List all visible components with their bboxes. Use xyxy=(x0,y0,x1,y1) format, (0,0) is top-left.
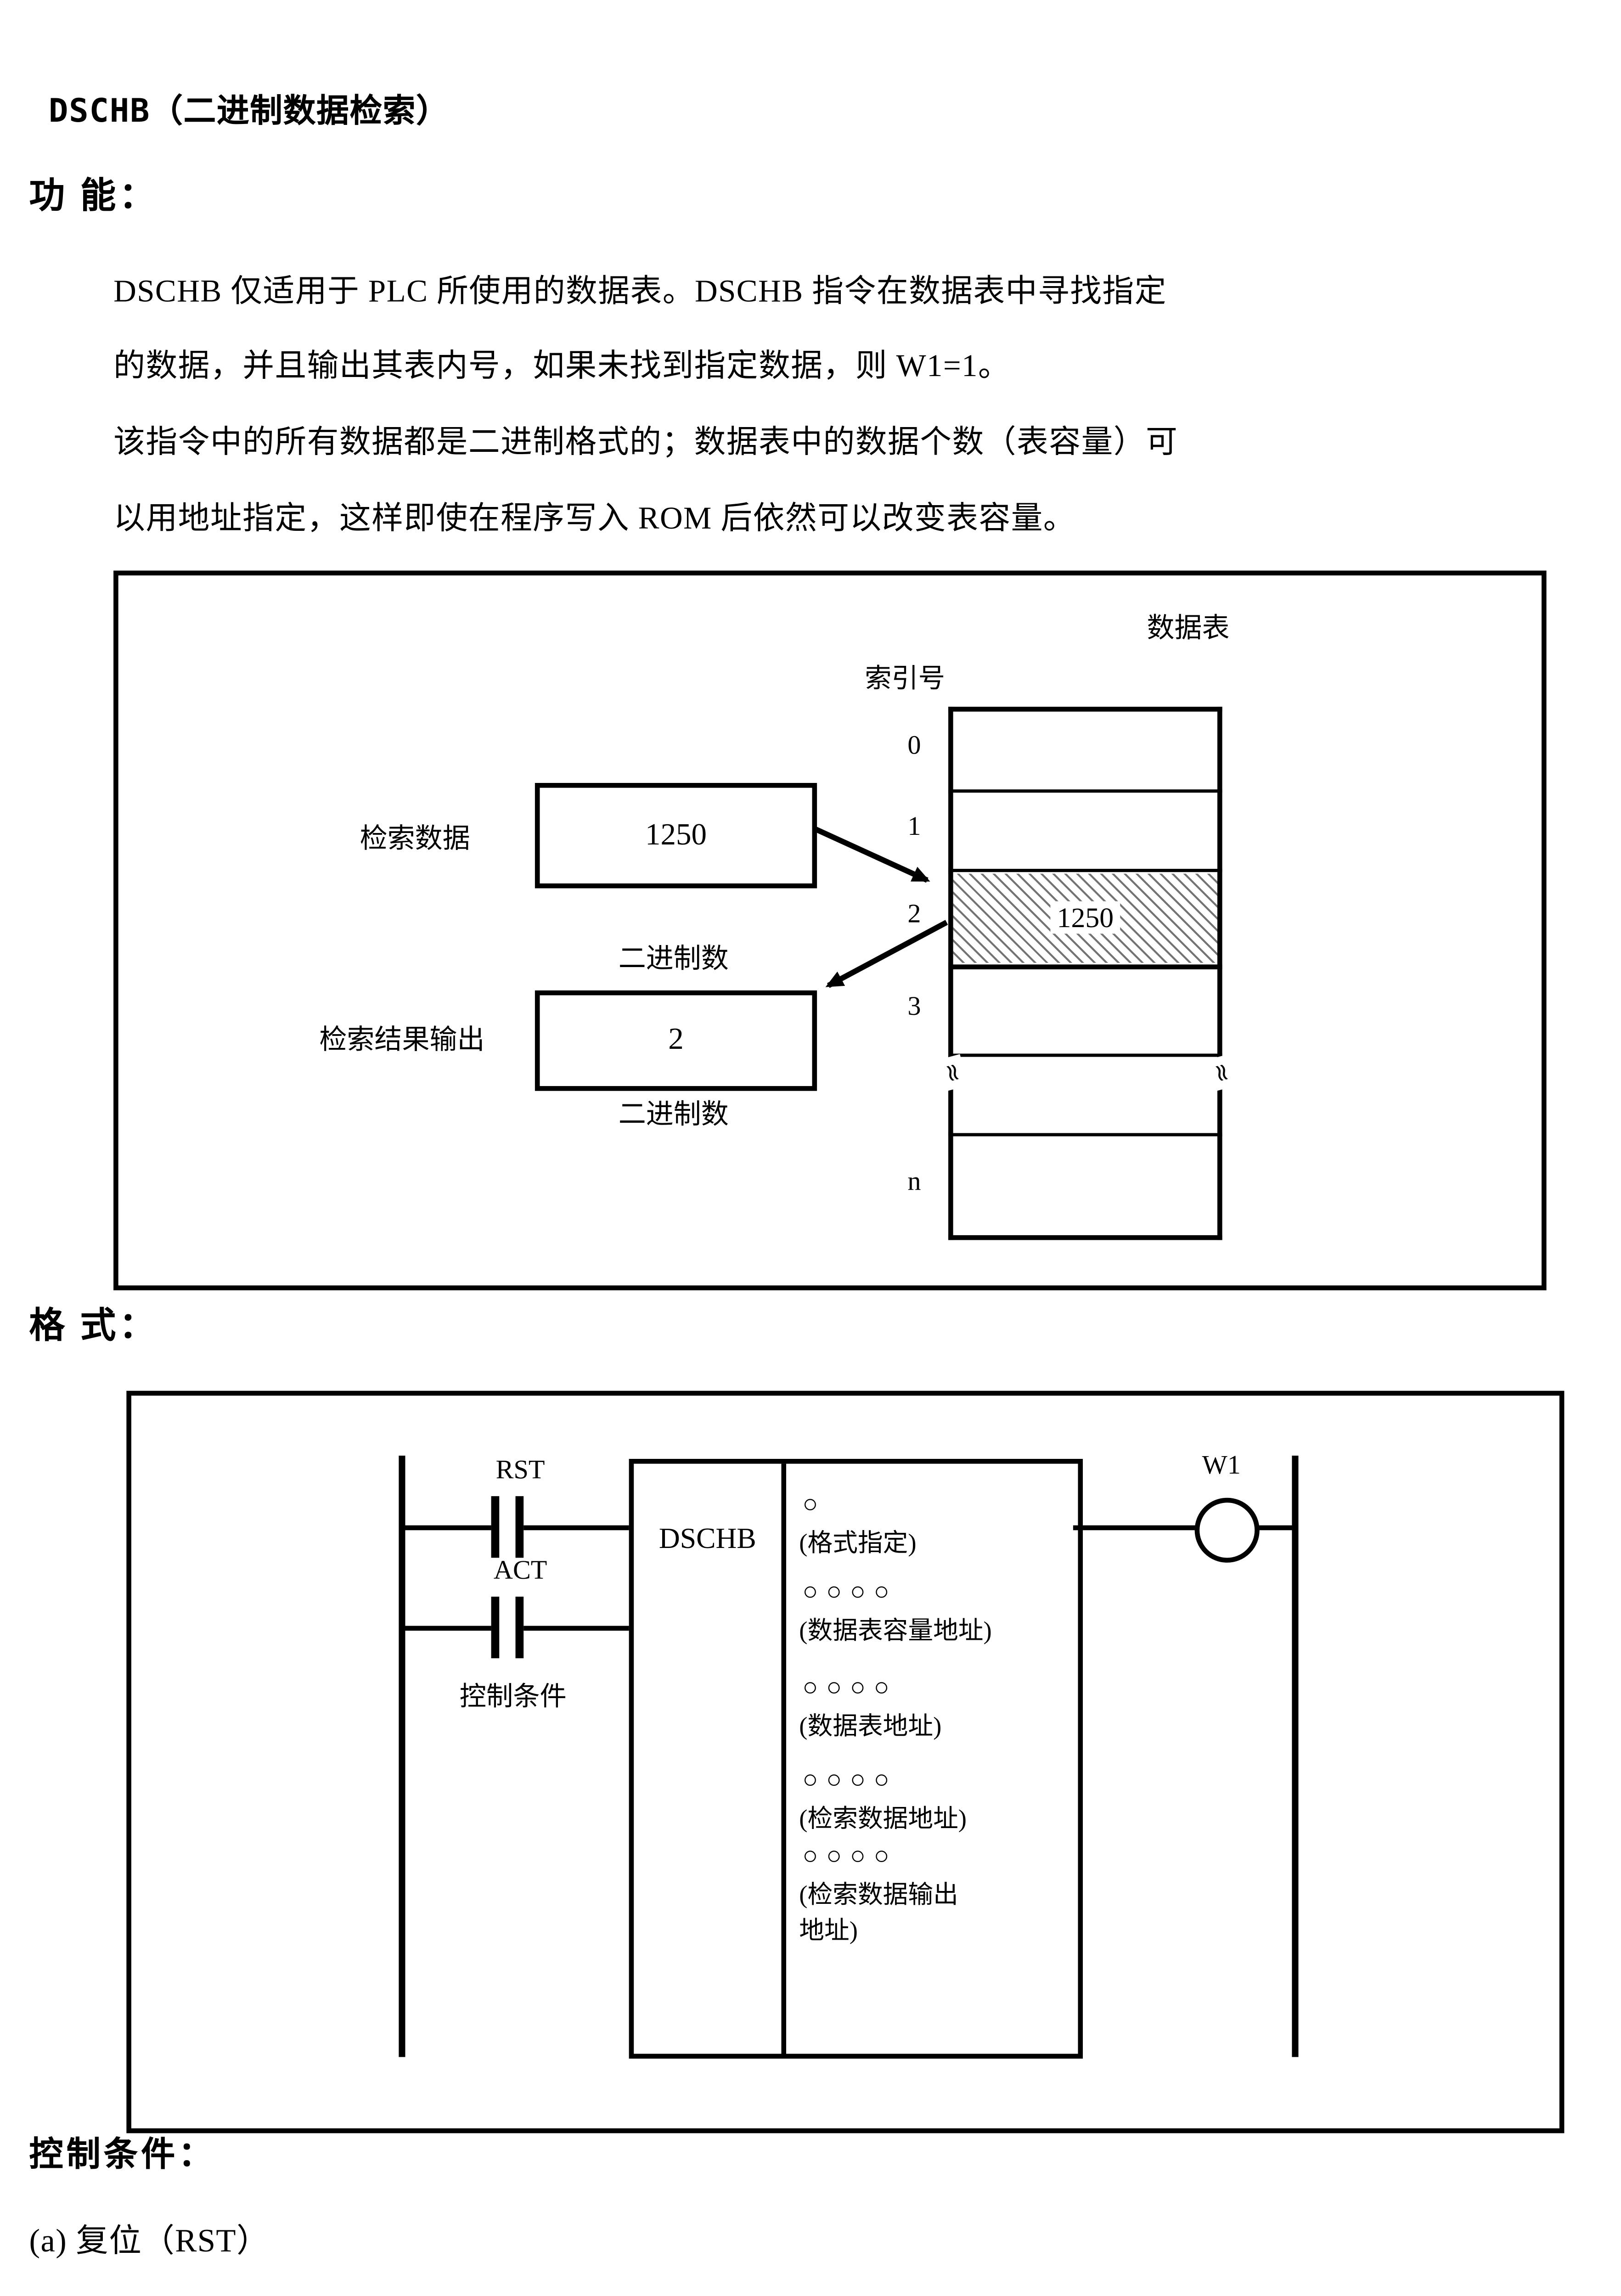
figure-ladder-format: RST ACT 控制条件 DSCHB ○ (格式指定) ○○○○ (数据表容量地… xyxy=(126,1391,1564,2133)
act-contact-bar-left-icon xyxy=(491,1597,499,1658)
param3-operand: ○○○○ xyxy=(802,1674,897,1704)
control-condition-label: 控制条件 xyxy=(388,1674,639,1713)
document-page: DSCHB（二进制数据检索） 功 能： DSCHB 仅适用于 PLC 所使用的数… xyxy=(0,0,1621,2296)
param5-label-line2: 地址) xyxy=(799,1911,858,1947)
rst-contact-label: RST xyxy=(439,1454,602,1486)
param5-operand: ○○○○ xyxy=(802,1843,897,1873)
coil-rung-left xyxy=(1073,1525,1196,1530)
param5-label-line1: (检索数据输出 xyxy=(799,1875,958,1911)
rst-contact-bar-left-icon xyxy=(491,1496,499,1558)
paragraph-line-2: 的数据，并且输出其表内号，如果未找到指定数据，则 W1=1。 xyxy=(113,339,1010,386)
rst-rung-left xyxy=(402,1525,491,1530)
act-rung-left xyxy=(402,1625,491,1631)
arrow-search-to-row-icon xyxy=(814,828,927,880)
paragraph-line-1: DSCHB 仅适用于 PLC 所使用的数据表。DSCHB 指令在数据表中寻找指定 xyxy=(113,264,1167,311)
param4-label: (检索数据地址) xyxy=(799,1799,967,1835)
format-heading: 格 式： xyxy=(29,1297,158,1349)
dschb-instruction-box: DSCHB ○ (格式指定) ○○○○ (数据表容量地址) ○○○○ (数据表地… xyxy=(629,1459,1083,2059)
control-condition-heading: 控制条件： xyxy=(29,2128,216,2177)
param3-label: (数据表地址) xyxy=(799,1707,941,1743)
instruction-name: DSCHB xyxy=(634,1522,781,1556)
function-heading: 功 能： xyxy=(29,167,158,219)
param2-operand: ○○○○ xyxy=(802,1579,897,1608)
arrow-row-to-result-icon xyxy=(828,923,947,986)
param2-label: (数据表容量地址) xyxy=(799,1611,991,1647)
rst-contact-bar-right-icon xyxy=(516,1496,523,1558)
w1-coil-label: W1 xyxy=(1144,1449,1298,1482)
param1-operand: ○ xyxy=(802,1491,826,1521)
param1-label: (格式指定) xyxy=(799,1524,916,1559)
w1-coil-icon xyxy=(1195,1498,1260,1563)
act-rung-right xyxy=(523,1625,630,1631)
page-title: DSCHB（二进制数据检索） xyxy=(49,84,450,131)
param4-operand: ○○○○ xyxy=(802,1767,897,1796)
figure-data-table-search: 数据表 索引号 1250 0 1 2 3 n ≈ xyxy=(113,571,1547,1290)
left-power-rail xyxy=(399,1456,404,2057)
coil-rung-right xyxy=(1258,1525,1294,1530)
page-content: DSCHB（二进制数据检索） 功 能： DSCHB 仅适用于 PLC 所使用的数… xyxy=(0,0,1621,2296)
act-contact-bar-right-icon xyxy=(516,1597,523,1658)
figure1-arrows xyxy=(118,575,1542,1285)
right-power-rail xyxy=(1292,1456,1297,2057)
paragraph-line-3: 该指令中的所有数据都是二进制格式的；数据表中的数据个数（表容量）可 xyxy=(113,415,1178,462)
rst-rung-right xyxy=(523,1525,630,1530)
instruction-divider xyxy=(781,1464,785,2054)
paragraph-line-4: 以用地址指定，这样即使在程序写入 ROM 后依然可以改变表容量。 xyxy=(113,491,1075,538)
act-contact-label: ACT xyxy=(439,1554,602,1587)
control-item-a: (a) 复位（RST） xyxy=(29,2214,270,2261)
